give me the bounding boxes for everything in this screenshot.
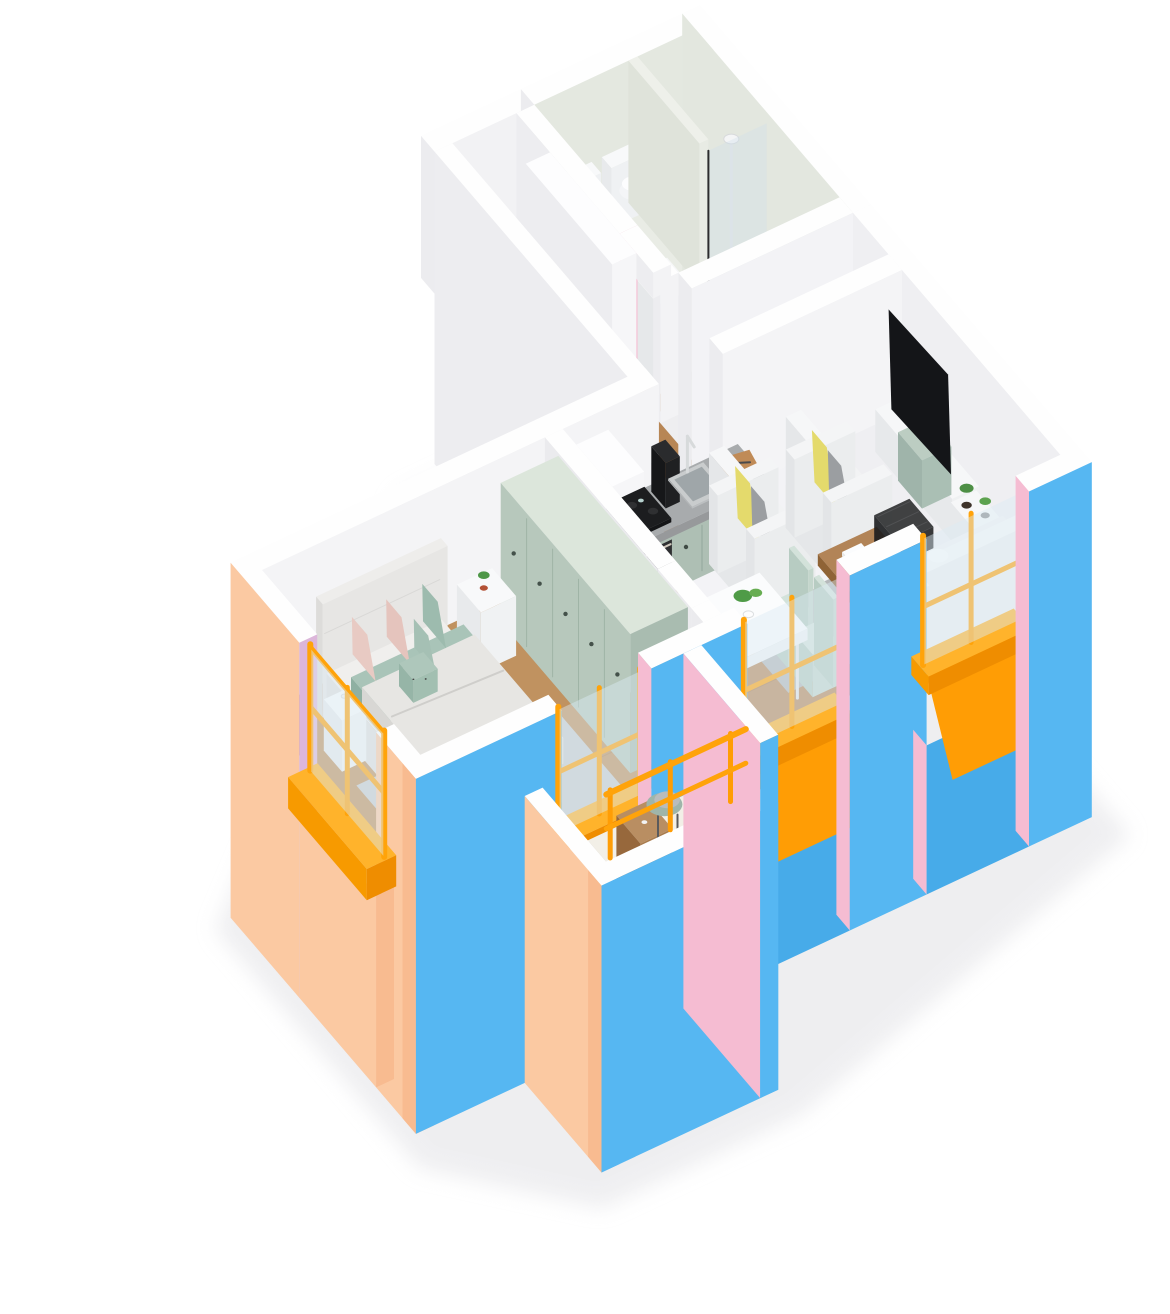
nightstand-plant [478, 571, 490, 579]
plant-leaves-1 [960, 484, 974, 493]
balcony-right-wall-front [760, 735, 778, 1098]
armchair-1-arm-far-left [709, 486, 718, 574]
front-wall-seg-right-left [1016, 476, 1029, 847]
left-wall-under-window-front [376, 886, 394, 1088]
front-wall-seg-right-front [1029, 462, 1092, 846]
front-wall-bedroom-seg-left [403, 763, 416, 1134]
cat-pillow-eye-1 [412, 679, 414, 680]
balcony-cup [642, 820, 648, 824]
plant-leaves-2 [979, 497, 991, 505]
plant-pot-dark [961, 502, 971, 509]
nightstand-plant-pot [480, 585, 488, 590]
front-wall-seg-mid-right-left [836, 560, 849, 931]
floorplan-svg [0, 0, 1170, 1314]
topwing-back-wall-hall-left [421, 136, 435, 294]
kitchen-cup [638, 499, 644, 503]
front-wall-under-living-window-left [913, 730, 926, 895]
dining-plant-pot [743, 611, 753, 618]
armchair-2-arm-far-left [786, 450, 795, 538]
cooktop-burner-2 [648, 508, 658, 515]
screenshot-root [0, 0, 1170, 1314]
dining-plant-leaves-b [749, 589, 762, 597]
dining-plant-leaves-a [734, 590, 753, 602]
balcony-front-parapet-left [588, 870, 601, 1173]
cat-pillow-eye-2 [425, 678, 427, 679]
bath-hall-wall-lower-front [660, 273, 678, 423]
